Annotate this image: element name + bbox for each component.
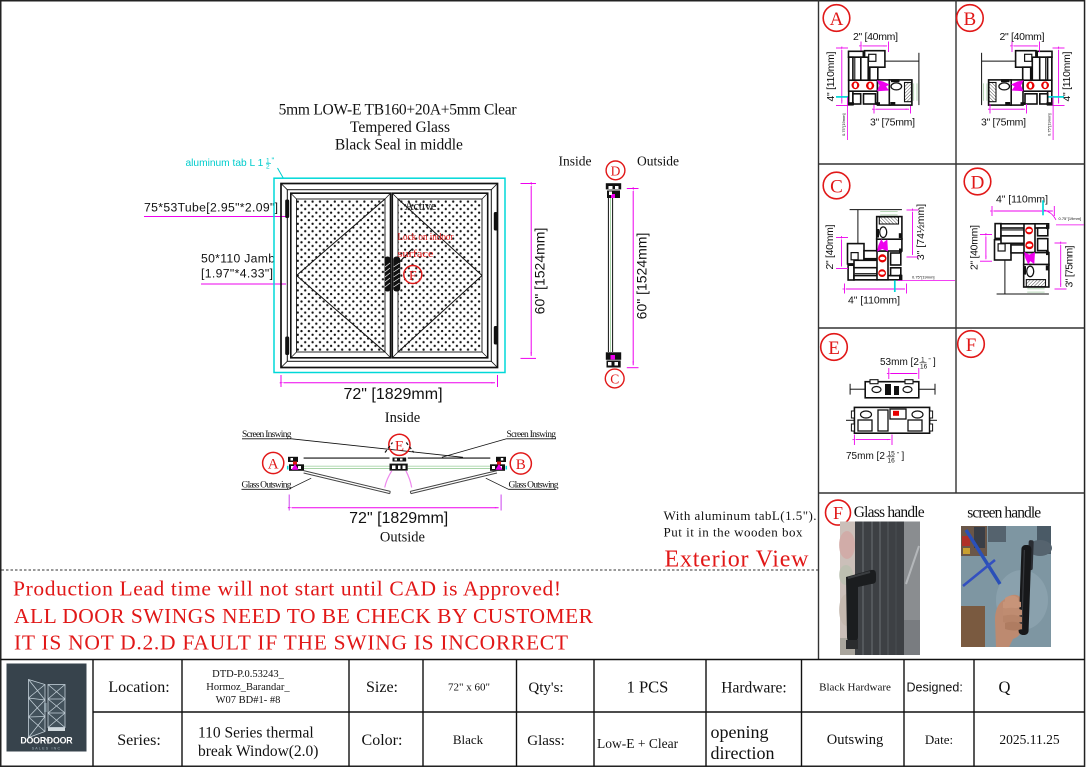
svg-text:D: D	[611, 164, 621, 179]
svg-text:ALL DOOR SWINGS NEED TO BE CHE: ALL DOOR SWINGS NEED TO BE CHECK BY CUST…	[14, 604, 594, 628]
svg-text:": "	[897, 453, 899, 459]
svg-text:Hardware:: Hardware:	[721, 680, 786, 697]
svg-text:75mm [2: 75mm [2	[846, 451, 885, 462]
svg-text:opening: opening	[711, 722, 769, 742]
svg-text:Date:: Date:	[925, 732, 953, 747]
svg-text:C: C	[610, 372, 619, 387]
svg-text:Hormoz_Barandar_: Hormoz_Barandar_	[206, 682, 290, 693]
svg-text:A: A	[268, 457, 279, 473]
svg-text:1 PCS: 1 PCS	[627, 678, 669, 697]
svg-text:1: 1	[921, 357, 925, 364]
svg-text:F: F	[966, 335, 977, 356]
svg-text:screen handle: screen handle	[967, 505, 1041, 522]
svg-text:72" x 60": 72" x 60"	[448, 682, 490, 694]
svg-text:Exterior View: Exterior View	[665, 547, 810, 573]
svg-text:F: F	[409, 269, 417, 284]
svg-text:E: E	[828, 338, 840, 359]
svg-text:Qty's:: Qty's:	[528, 680, 563, 696]
svg-text:16: 16	[888, 458, 896, 465]
svg-text:Location:: Location:	[108, 679, 169, 696]
svg-text:A: A	[830, 9, 844, 30]
svg-text:15: 15	[888, 451, 896, 458]
svg-text:]: ]	[933, 357, 936, 368]
svg-text:60" [1524mm]: 60" [1524mm]	[532, 228, 548, 315]
svg-text:break Window(2.0): break Window(2.0)	[198, 743, 318, 760]
svg-text:DTD-P.0.53243_: DTD-P.0.53243_	[212, 669, 285, 680]
svg-text:": "	[272, 157, 275, 166]
svg-text:With aluminum tabL(1.5").: With aluminum tabL(1.5").	[664, 508, 817, 523]
svg-text:3" [75mm]: 3" [75mm]	[981, 117, 1026, 129]
svg-text:D: D	[971, 173, 985, 194]
svg-text:Glass:: Glass:	[527, 733, 565, 749]
svg-text:C: C	[830, 177, 843, 198]
svg-text:Color:: Color:	[362, 732, 403, 749]
svg-text:B: B	[516, 457, 526, 473]
svg-text:Size:: Size:	[366, 679, 398, 696]
svg-text:110 Series thermal: 110 Series thermal	[198, 725, 314, 742]
svg-text:B: B	[964, 9, 977, 30]
svg-text:]: ]	[902, 451, 905, 462]
svg-text:Outside: Outside	[380, 530, 425, 546]
svg-text:3" [75mm]: 3" [75mm]	[1064, 245, 1076, 287]
svg-text:Glass handle: Glass handle	[854, 504, 925, 521]
svg-text:0.75"[19mm]: 0.75"[19mm]	[841, 113, 846, 136]
svg-text:Q: Q	[999, 678, 1011, 697]
svg-text:0.75"[19mm]: 0.75"[19mm]	[1059, 216, 1082, 221]
svg-text:60" [1524mm]: 60" [1524mm]	[634, 233, 650, 320]
svg-text:Inside: Inside	[559, 154, 592, 169]
svg-text:2" [40mm]: 2" [40mm]	[1000, 31, 1045, 43]
svg-text:Series:: Series:	[117, 732, 161, 749]
svg-text:Black Seal in middle: Black Seal in middle	[335, 137, 463, 154]
svg-text:16: 16	[920, 364, 928, 371]
svg-text:4" [110mm]: 4" [110mm]	[996, 194, 1048, 206]
svg-text:Outswing: Outswing	[827, 732, 883, 748]
svg-text:2" [40mm]: 2" [40mm]	[824, 224, 836, 269]
svg-text:4" [110mm]: 4" [110mm]	[825, 51, 837, 101]
svg-text:": "	[929, 359, 931, 365]
svg-text:72" [1829mm]: 72" [1829mm]	[343, 386, 442, 403]
svg-text:2" [40mm]: 2" [40mm]	[853, 31, 898, 43]
svg-text:Black Hardware: Black Hardware	[819, 682, 891, 694]
svg-text:Tempered Glass: Tempered Glass	[350, 119, 450, 136]
svg-text:53mm [2: 53mm [2	[880, 357, 919, 368]
svg-text:aluminum tab L 1: aluminum tab L 1	[186, 158, 264, 169]
svg-text:surface: surface	[398, 248, 434, 260]
svg-text:Active: Active	[405, 198, 437, 213]
svg-text:DOOR: DOOR	[47, 736, 73, 746]
svg-text:Outside: Outside	[637, 154, 679, 169]
svg-text:2: 2	[266, 164, 270, 171]
svg-text:Put it in the wooden box: Put it in the wooden box	[664, 525, 804, 540]
svg-text:SALES INC: SALES INC	[32, 747, 62, 751]
svg-text:[1.97"*4.33"]: [1.97"*4.33"]	[201, 267, 273, 281]
svg-text:Production Lead time will not: Production Lead time will not start unti…	[13, 577, 561, 601]
svg-text:Lock on indoor: Lock on indoor	[398, 231, 454, 243]
svg-text:0.75"[19mm]: 0.75"[19mm]	[1047, 113, 1052, 136]
svg-text:72" [1829mm]: 72" [1829mm]	[349, 510, 448, 527]
svg-text:F: F	[833, 503, 843, 523]
svg-text:direction: direction	[711, 743, 775, 763]
svg-text:0.75"[19mm]: 0.75"[19mm]	[912, 275, 935, 280]
svg-text:E: E	[395, 438, 404, 454]
svg-text:4" [110mm]: 4" [110mm]	[1061, 51, 1073, 101]
svg-text:5mm LOW-E TB160+20A+5mm Clear: 5mm LOW-E TB160+20A+5mm Clear	[279, 102, 518, 119]
svg-text:W07 BD#1- #8: W07 BD#1- #8	[216, 695, 281, 706]
svg-text:50*110 Jamb: 50*110 Jamb	[201, 252, 275, 266]
svg-text:3" [74½mm]: 3" [74½mm]	[915, 204, 927, 260]
svg-text:75*53Tube[2.95"*2.09"]: 75*53Tube[2.95"*2.09"]	[144, 201, 278, 215]
svg-text:3" [75mm]: 3" [75mm]	[870, 117, 915, 129]
svg-text:Black: Black	[453, 732, 484, 747]
svg-text:Inside: Inside	[385, 410, 420, 426]
svg-text:2" [40mm]: 2" [40mm]	[969, 225, 981, 270]
svg-text:IT IS NOT D.2.D FAULT IF THE S: IT IS NOT D.2.D FAULT IF THE SWING IS IN…	[14, 631, 568, 655]
svg-text:2025.11.25: 2025.11.25	[999, 732, 1059, 747]
svg-text:Designed:: Designed:	[907, 681, 963, 695]
svg-text:4" [110mm]: 4" [110mm]	[848, 295, 900, 307]
svg-text:Low-E + Clear: Low-E + Clear	[597, 736, 679, 751]
